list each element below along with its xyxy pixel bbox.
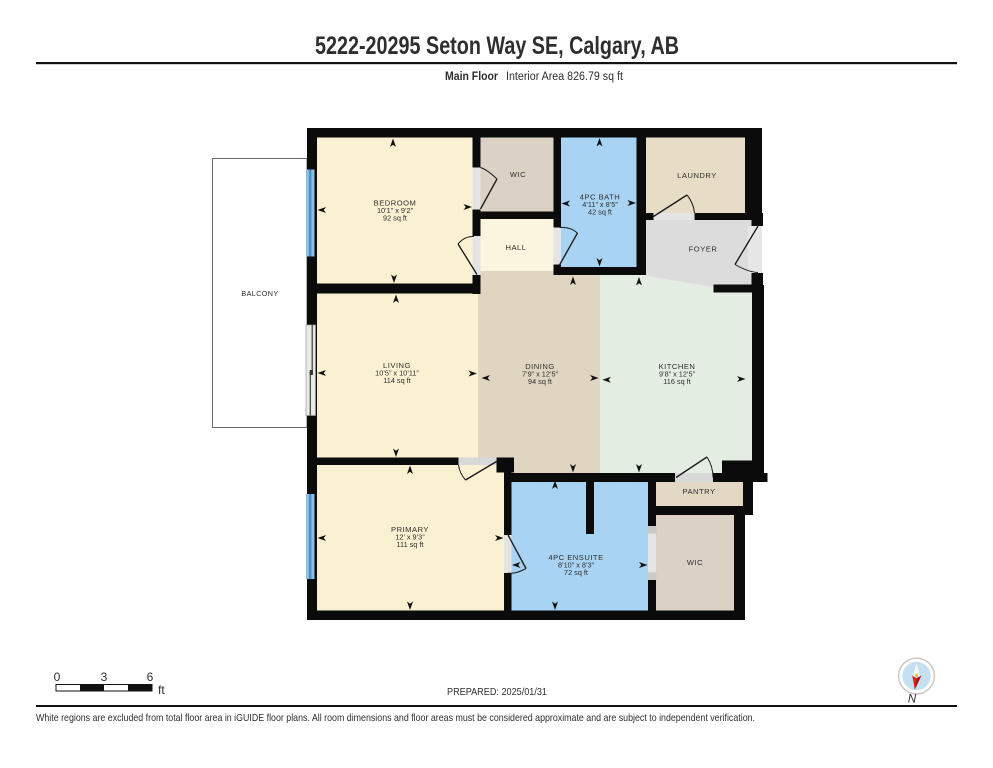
svg-text:PREPARED: 2025/01/31: PREPARED: 2025/01/31 <box>447 686 547 698</box>
svg-text:Interior Area 826.79 sq ft: Interior Area 826.79 sq ft <box>506 71 624 83</box>
svg-text:72 sq ft: 72 sq ft <box>564 568 588 577</box>
svg-text:Main Floor: Main Floor <box>445 71 498 83</box>
svg-text:6: 6 <box>147 670 154 684</box>
svg-text:0: 0 <box>54 670 61 684</box>
svg-text:3: 3 <box>101 670 108 684</box>
svg-text:WIC: WIC <box>510 170 526 179</box>
svg-text:HALL: HALL <box>506 243 527 252</box>
svg-text:116 sq ft: 116 sq ft <box>663 377 690 386</box>
svg-text:111 sq ft: 111 sq ft <box>397 540 424 549</box>
svg-text:5222-20295 Seton Way SE, Calga: 5222-20295 Seton Way SE, Calgary, AB <box>315 32 679 60</box>
svg-text:BALCONY: BALCONY <box>241 289 278 298</box>
svg-text:114 sq ft: 114 sq ft <box>383 376 410 385</box>
svg-text:N: N <box>908 694 917 706</box>
svg-text:94 sq ft: 94 sq ft <box>528 377 552 386</box>
svg-text:White regions are excluded fro: White regions are excluded from total fl… <box>36 713 755 724</box>
svg-text:PANTRY: PANTRY <box>682 487 715 496</box>
svg-text:LAUNDRY: LAUNDRY <box>677 171 717 180</box>
svg-text:92 sq ft: 92 sq ft <box>383 214 407 223</box>
svg-text:FOYER: FOYER <box>689 245 718 254</box>
svg-text:WIC: WIC <box>687 558 703 567</box>
svg-text:42 sq ft: 42 sq ft <box>588 208 612 217</box>
svg-text:ft: ft <box>158 683 165 697</box>
